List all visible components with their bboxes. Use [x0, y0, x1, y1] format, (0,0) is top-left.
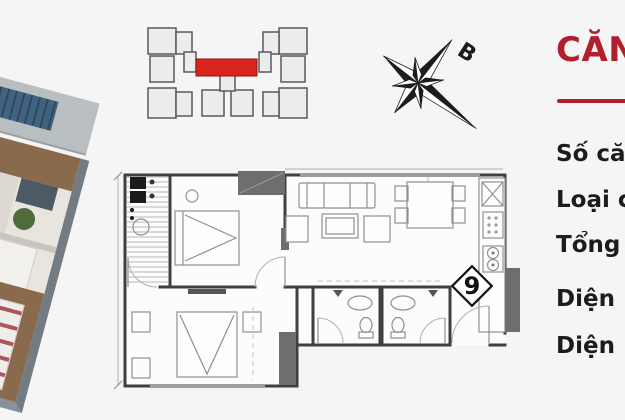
kitchen — [479, 178, 520, 332]
unit-number: 9 — [464, 272, 481, 300]
armchair-left — [286, 216, 308, 242]
dining-table — [407, 182, 453, 228]
bed-1 — [175, 211, 239, 265]
tv-console — [188, 289, 226, 294]
sofa — [299, 183, 375, 208]
bed-2 — [177, 312, 237, 377]
dimension-line — [114, 172, 122, 389]
shaft — [506, 268, 520, 332]
armchair-right — [364, 216, 390, 242]
balcony — [127, 177, 168, 287]
floor-plan: 9 — [0, 0, 625, 420]
wardrobe-2 — [279, 332, 296, 385]
